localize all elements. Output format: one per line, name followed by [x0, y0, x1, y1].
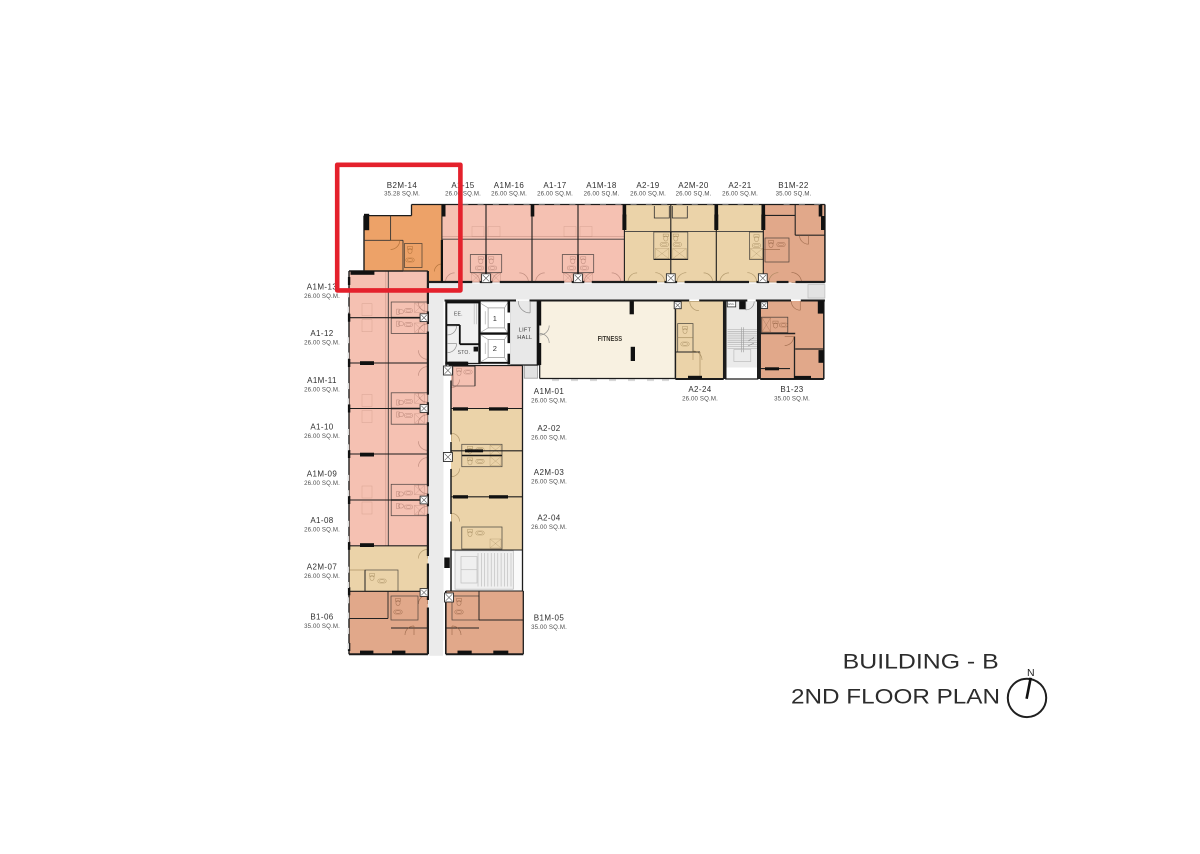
svg-text:A1-08: A1-08 [310, 516, 333, 525]
svg-text:35.00 SQ.M.: 35.00 SQ.M. [774, 396, 810, 403]
svg-text:26.00 SQ.M.: 26.00 SQ.M. [304, 293, 340, 300]
svg-text:35.00 SQ.M.: 35.00 SQ.M. [531, 624, 567, 631]
svg-text:HALL: HALL [517, 335, 532, 341]
svg-text:A1M-11: A1M-11 [307, 376, 337, 385]
svg-text:B2M-14: B2M-14 [387, 181, 418, 190]
svg-text:26.00 SQ.M.: 26.00 SQ.M. [304, 433, 340, 440]
svg-text:26.00 SQ.M.: 26.00 SQ.M. [531, 435, 567, 442]
svg-text:A1-12: A1-12 [310, 329, 333, 338]
svg-text:26.00 SQ.M.: 26.00 SQ.M. [537, 190, 573, 197]
svg-text:A1M-16: A1M-16 [494, 181, 525, 190]
svg-text:A2M-03: A2M-03 [534, 468, 565, 477]
svg-text:A1M-09: A1M-09 [307, 469, 338, 478]
svg-text:A1M-01: A1M-01 [534, 387, 565, 396]
svg-text:A2-21: A2-21 [728, 181, 751, 190]
svg-text:2ND FLOOR PLAN: 2ND FLOOR PLAN [791, 685, 1000, 709]
svg-text:35.00 SQ.M.: 35.00 SQ.M. [304, 623, 340, 630]
svg-text:26.00 SQ.M.: 26.00 SQ.M. [531, 479, 567, 486]
svg-text:LIFT: LIFT [519, 327, 532, 333]
svg-text:A2M-20: A2M-20 [678, 181, 709, 190]
svg-text:26.00 SQ.M.: 26.00 SQ.M. [531, 524, 567, 531]
svg-text:35.00 SQ.M.: 35.00 SQ.M. [776, 190, 812, 197]
svg-text:26.00 SQ.M.: 26.00 SQ.M. [304, 386, 340, 393]
svg-text:STO.: STO. [458, 350, 471, 356]
svg-text:FITNESS: FITNESS [598, 336, 623, 343]
svg-text:26.00 SQ.M.: 26.00 SQ.M. [304, 573, 340, 580]
svg-text:26.00 SQ.M.: 26.00 SQ.M. [531, 398, 567, 405]
svg-text:A1-17: A1-17 [543, 181, 566, 190]
svg-text:EE.: EE. [454, 312, 463, 318]
svg-text:26.00 SQ.M.: 26.00 SQ.M. [722, 190, 758, 197]
svg-text:2: 2 [493, 344, 497, 353]
svg-text:26.00 SQ.M.: 26.00 SQ.M. [304, 527, 340, 534]
svg-text:A1-15: A1-15 [451, 181, 474, 190]
svg-text:A2-04: A2-04 [537, 514, 560, 523]
svg-text:B1M-22: B1M-22 [778, 181, 809, 190]
svg-text:A1-10: A1-10 [310, 423, 333, 432]
svg-text:B1M-05: B1M-05 [534, 614, 565, 623]
svg-text:26.00 SQ.M.: 26.00 SQ.M. [630, 190, 666, 197]
svg-text:B1-06: B1-06 [310, 613, 333, 622]
svg-text:BUILDING - B: BUILDING - B [843, 650, 999, 674]
svg-text:35.28 SQ.M.: 35.28 SQ.M. [384, 190, 420, 197]
svg-text:26.00 SQ.M.: 26.00 SQ.M. [682, 396, 718, 403]
svg-text:A2M-07: A2M-07 [307, 563, 338, 572]
svg-text:A2-24: A2-24 [688, 385, 711, 394]
svg-text:A2-19: A2-19 [636, 181, 659, 190]
svg-text:26.00 SQ.M.: 26.00 SQ.M. [491, 190, 527, 197]
svg-text:26.00 SQ.M.: 26.00 SQ.M. [676, 190, 712, 197]
svg-text:26.00 SQ.M.: 26.00 SQ.M. [304, 340, 340, 347]
svg-text:A1M-13: A1M-13 [307, 283, 338, 292]
svg-text:26.00 SQ.M.: 26.00 SQ.M. [584, 190, 620, 197]
svg-text:B1-23: B1-23 [780, 385, 803, 394]
svg-text:ENG.: ENG. [728, 302, 735, 306]
svg-text:26.00 SQ.M.: 26.00 SQ.M. [304, 480, 340, 487]
svg-text:A1M-18: A1M-18 [586, 181, 617, 190]
svg-text:26.00 SQ.M.: 26.00 SQ.M. [445, 190, 481, 197]
svg-text:N: N [1027, 667, 1035, 679]
svg-text:1: 1 [493, 314, 497, 323]
svg-text:A2-02: A2-02 [537, 424, 560, 433]
